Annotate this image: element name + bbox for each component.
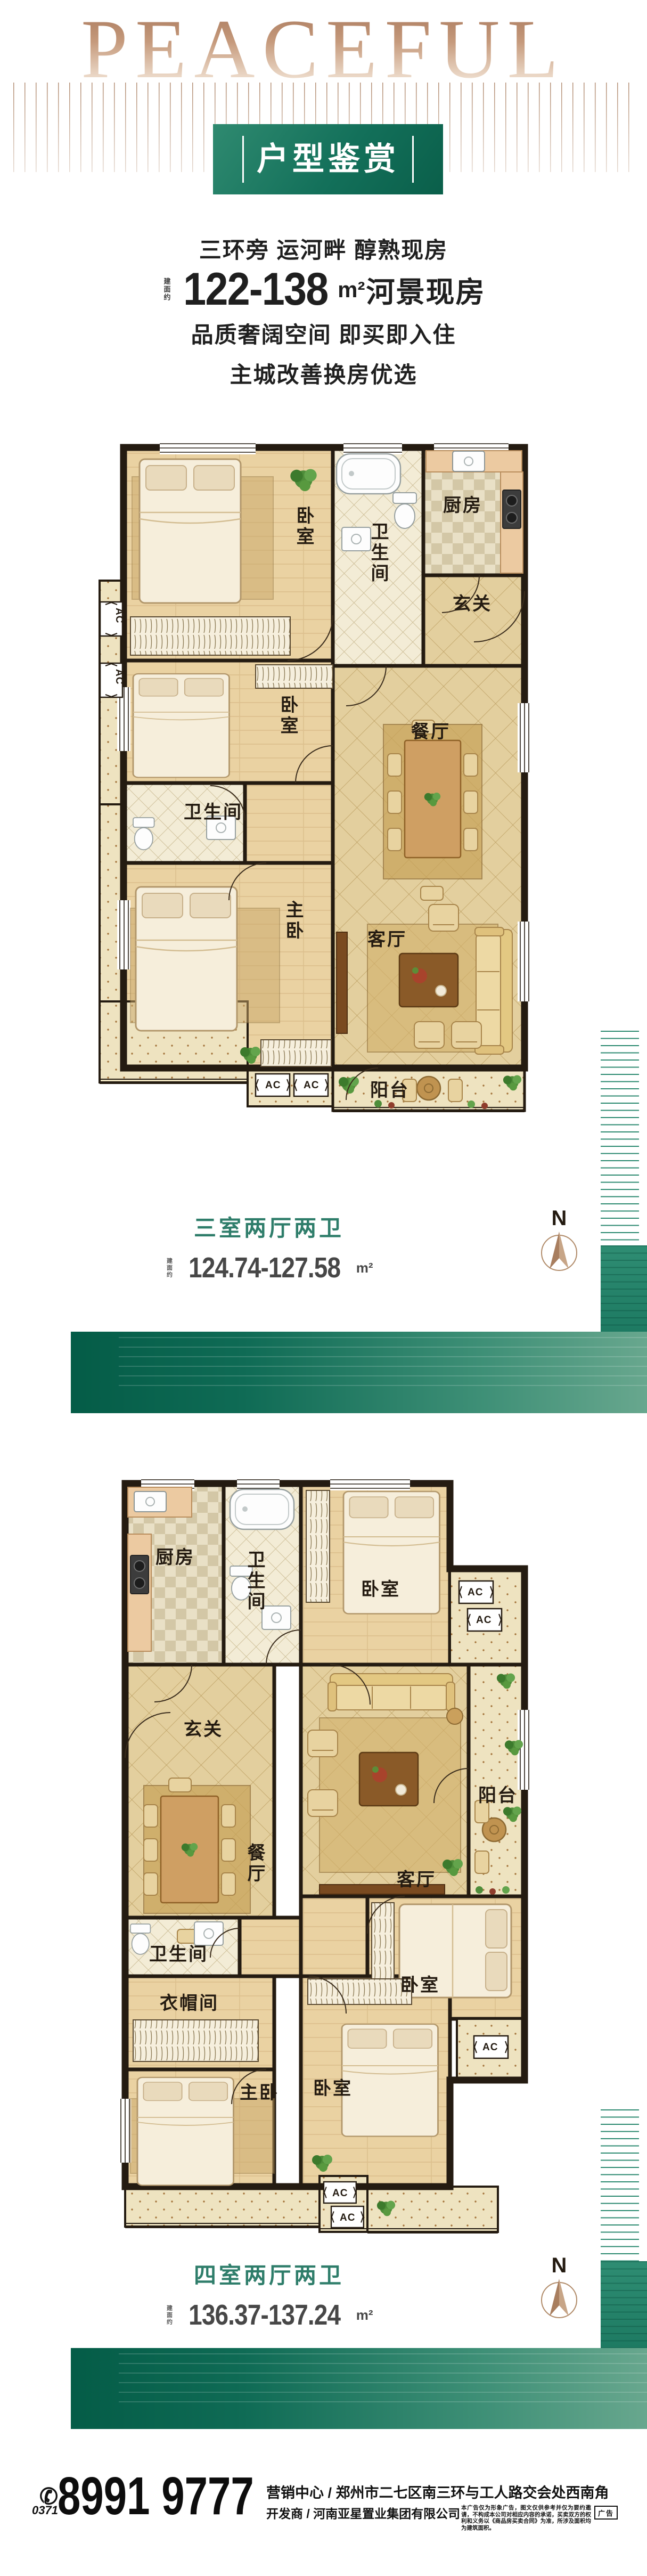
divider1-ladder [601, 1031, 639, 1245]
room-label: 玄关 [453, 594, 492, 614]
divider2-band [71, 2348, 647, 2429]
room-label: 卧室 [293, 506, 314, 548]
room-label: 厨房 [155, 1547, 195, 1568]
intro-line1: 三环旁 运河畔 醇熟现房 [0, 232, 647, 265]
plan1-area-prefix: 建面约 [165, 1258, 173, 1278]
section-badge: 户型鉴赏 [213, 124, 443, 194]
intro-copy: 三环旁 运河畔 醇熟现房 建面约 122-138 m² 河景现房 品质奢阔空间 … [0, 232, 647, 389]
ac-label: AC [113, 669, 125, 684]
room-label: 阳台 [478, 1786, 518, 1806]
developer-name: 河南亚星置业集团有限公司 [313, 2507, 460, 2521]
room-label: 卫生间 [244, 1550, 265, 1612]
room-label: 餐厅 [411, 722, 451, 742]
compass-n-label: N [552, 2254, 567, 2277]
poster-page: PEACEFUL 户型鉴赏 三环旁 运河畔 醇熟现房 建面约 122-138 m… [0, 0, 647, 2576]
room-label: 卧室 [400, 1975, 440, 1995]
phone-number: 8991 9777 [58, 2469, 254, 2523]
floorplan-1: 卧室 卫生间 厨房 玄关 餐厅 卧室 卫生间 主卧 客厅 阳台 AC AC AC… [80, 426, 538, 1119]
plan1-area: 建面约 124.74-127.58 m² [0, 1251, 538, 1284]
brand-word: PEACEFUL [0, 7, 647, 92]
marketing-center-line: 营销中心 / 郑州市二七区南三环与工人路交会处西南角 [266, 2481, 609, 2502]
developer-line: 开发商 / 河南亚星置业集团有限公司 [266, 2504, 460, 2522]
ac-label: AC [340, 2212, 355, 2223]
separator: / [306, 2507, 309, 2521]
ac-label: AC [482, 2042, 498, 2053]
room-label: 客厅 [397, 1869, 436, 1890]
plan1-caption: 三室两厅两卫 建面约 124.74-127.58 m² [0, 1210, 538, 1284]
intro-area-suffix: 河景现房 [366, 268, 485, 311]
divider1-column [601, 1245, 647, 1332]
room-label: 卧室 [277, 695, 298, 737]
developer-label: 开发商 [266, 2507, 303, 2521]
legal-disclaimer: 本广告仅为形象广告，图文仅供参考并仅为要约邀请，不构成本公司对相应内容的承诺，买… [461, 2505, 591, 2531]
room-label: 卫生间 [184, 802, 243, 822]
ac-label: AC [332, 2188, 348, 2199]
divider2-column [601, 2261, 647, 2348]
plan1-title: 三室两厅两卫 [0, 1210, 538, 1243]
compass-n-label: N [552, 1207, 567, 1230]
room-label: 玄关 [184, 1719, 223, 1740]
intro-line3: 品质奢阔空间 即买即入住 [0, 317, 647, 349]
ac-label: AC [113, 608, 125, 623]
plan2-title: 四室两厅两卫 [0, 2257, 538, 2290]
plan2-area-value: 136.37-137.24 [189, 2298, 341, 2332]
room-label: 阳台 [370, 1080, 410, 1100]
intro-area-range: 122-138 [183, 268, 327, 312]
room-label: 主卧 [283, 900, 303, 942]
room-label: 主卧 [240, 2083, 279, 2103]
marketing-label: 营销中心 [266, 2485, 324, 2501]
plan2-area-prefix: 建面约 [165, 2305, 173, 2326]
compass-north-1: N [539, 1204, 579, 1276]
section-badge-label: 户型鉴赏 [242, 136, 414, 183]
room-label: 餐厅 [244, 1843, 265, 1885]
ac-label: AC [476, 1615, 492, 1626]
intro-line4: 主城改善换房优选 [0, 357, 647, 389]
marketing-address: 郑州市二七区南三环与工人路交会处西南角 [336, 2485, 609, 2501]
intro-area-prefix: 建面约 [162, 278, 172, 301]
ac-label: AC [265, 1080, 281, 1091]
room-label: 卫生间 [149, 1944, 208, 1964]
intro-area-line: 建面约 122-138 m² 河景现房 [0, 268, 647, 312]
ad-badge: 广告 [594, 2506, 618, 2520]
room-label: 厨房 [443, 495, 482, 516]
plan1-area-value: 124.74-127.58 [189, 1251, 341, 1284]
plan2-caption: 四室两厅两卫 建面约 136.37-137.24 m² [0, 2257, 538, 2332]
ac-label: AC [468, 1587, 483, 1598]
room-label: 客厅 [367, 929, 407, 950]
plan2-area-unit: m² [356, 2307, 373, 2324]
divider2-ladder [601, 2109, 639, 2261]
separator: / [328, 2485, 332, 2501]
plan1-area-unit: m² [356, 1260, 373, 1276]
divider1-band [71, 1332, 647, 1413]
phone-area-code: 0371 [32, 2504, 58, 2517]
intro-area-unit: m² [338, 277, 365, 303]
floorplan-2: 厨房 卫生间 卧室 玄关 餐厅 客厅 阳台 卫生间 衣帽间 主卧 卧室 卧室 A… [80, 1470, 538, 2243]
compass-north-2: N [539, 2251, 579, 2324]
plan2-area: 建面约 136.37-137.24 m² [0, 2298, 538, 2332]
room-label: 卧室 [313, 2078, 353, 2099]
room-label: 衣帽间 [160, 1993, 219, 2013]
room-label: 卫生间 [368, 522, 389, 584]
room-label: 卧室 [361, 1579, 400, 1600]
ac-label: AC [304, 1080, 319, 1091]
